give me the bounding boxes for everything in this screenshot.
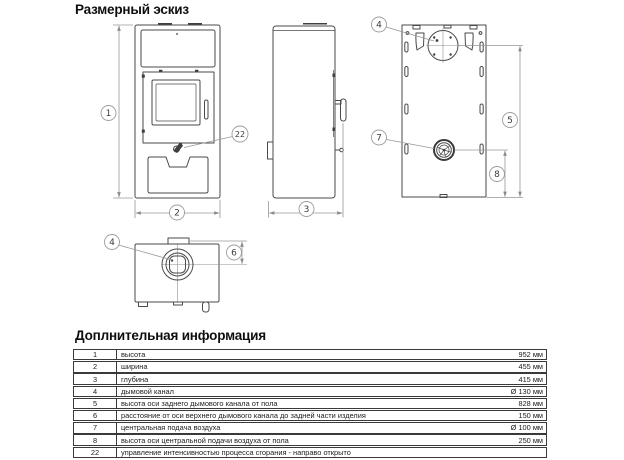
dimensional-sketch-svg: 1 2 22 bbox=[0, 0, 624, 340]
table-row: 5высота оси заднего дымового канала от п… bbox=[73, 398, 547, 409]
side-door-handle bbox=[335, 99, 346, 121]
side-view: 3 bbox=[268, 23, 347, 218]
dim-width: 2 bbox=[135, 200, 220, 220]
top-plate-seam bbox=[158, 23, 202, 25]
callout-7-label: 7 bbox=[376, 134, 382, 144]
row-number: 22 bbox=[74, 448, 117, 457]
dim-height: 1 bbox=[101, 25, 133, 198]
callout-4b-label: 4 bbox=[109, 238, 115, 248]
central-air-inlet bbox=[434, 140, 454, 160]
side-air-inlet-stub bbox=[268, 142, 274, 159]
dim-width-label: 2 bbox=[174, 209, 180, 219]
row-description: высота bbox=[117, 350, 518, 359]
row-value: 150 мм bbox=[518, 411, 546, 420]
row-description: управление интенсивностью процесса сгора… bbox=[117, 448, 543, 457]
row-value: 952 мм bbox=[518, 350, 546, 359]
row-description: глубина bbox=[117, 374, 518, 383]
callout-4-label: 4 bbox=[376, 21, 382, 31]
row-number: 6 bbox=[74, 411, 117, 420]
row-value bbox=[543, 448, 546, 457]
dim-depth-label: 3 bbox=[304, 205, 310, 215]
row-description: высота оси заднего дымового канала от по… bbox=[117, 399, 518, 408]
top-feet bbox=[139, 302, 210, 312]
info-title: Доплнительная информация bbox=[75, 328, 266, 343]
table-row: 22управление интенсивностью процесса сго… bbox=[73, 447, 547, 458]
table-row: 4дымовой каналØ 130 мм bbox=[73, 386, 547, 397]
table-row: 7центральная подача воздухаØ 100 мм bbox=[73, 422, 547, 433]
row-description: ширина bbox=[117, 362, 518, 371]
info-table: 1высота952 мм2ширина455 мм3глубина415 мм… bbox=[73, 349, 547, 458]
top-view: 4 6 bbox=[105, 235, 248, 313]
back-body-outline bbox=[402, 25, 486, 197]
dim-height-label: 1 bbox=[106, 109, 112, 119]
row-value: Ø 130 мм bbox=[511, 387, 546, 396]
row-value: 455 мм bbox=[518, 362, 546, 371]
side-top-seam bbox=[303, 23, 327, 25]
row-value: 828 мм bbox=[518, 399, 546, 408]
back-view: 4 7 5 8 bbox=[372, 17, 524, 198]
dim-5-label: 5 bbox=[507, 116, 513, 126]
row-number: 1 bbox=[74, 350, 117, 359]
top-panel-dot bbox=[176, 33, 178, 35]
row-number: 3 bbox=[74, 374, 117, 383]
flue-bolt-dot bbox=[436, 39, 439, 42]
callout-22-label: 22 bbox=[235, 130, 245, 139]
row-number: 5 bbox=[74, 399, 117, 408]
side-lever-knob bbox=[335, 148, 343, 152]
row-description: центральная подача воздуха bbox=[117, 423, 511, 432]
front-view: 1 2 22 bbox=[101, 23, 248, 220]
row-description: высота оси центральной подачи воздуха от… bbox=[117, 435, 518, 444]
row-value: Ø 100 мм bbox=[511, 423, 546, 432]
dim-6-label: 6 bbox=[231, 249, 237, 259]
table-row: 3глубина415 мм bbox=[73, 373, 547, 384]
row-value: 250 мм bbox=[518, 435, 546, 444]
side-body-outline bbox=[273, 26, 335, 198]
dim-8-label: 8 bbox=[494, 170, 500, 180]
row-number: 4 bbox=[74, 387, 117, 396]
table-row: 8высота оси центральной подачи воздуха о… bbox=[73, 434, 547, 445]
table-row: 1высота952 мм bbox=[73, 349, 547, 360]
row-number: 2 bbox=[74, 362, 117, 371]
table-row: 6расстояние от оси верхнего дымового кан… bbox=[73, 410, 547, 421]
row-number: 8 bbox=[74, 435, 117, 444]
row-description: расстояние от оси верхнего дымового кана… bbox=[117, 411, 518, 420]
page: Размерный эскиз bbox=[0, 0, 624, 460]
lever-knob bbox=[179, 143, 182, 146]
row-value: 415 мм bbox=[518, 374, 546, 383]
table-row: 2ширина455 мм bbox=[73, 361, 547, 372]
row-number: 7 bbox=[74, 423, 117, 432]
row-description: дымовой канал bbox=[117, 387, 511, 396]
